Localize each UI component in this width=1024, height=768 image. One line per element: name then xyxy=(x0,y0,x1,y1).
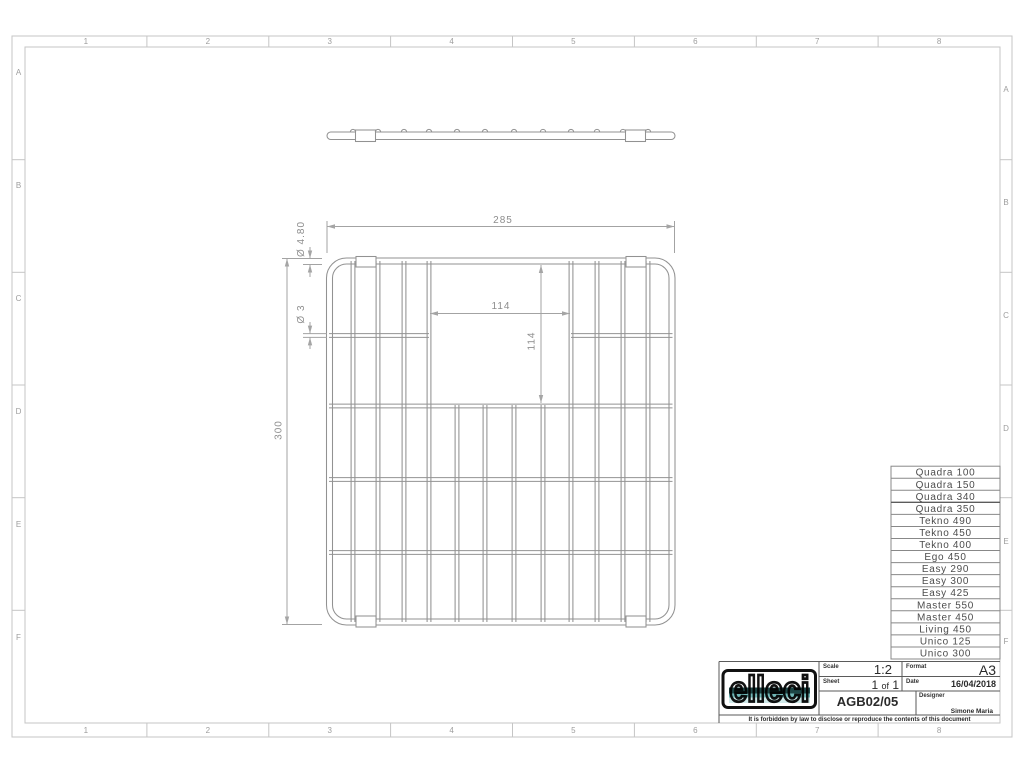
svg-text:300: 300 xyxy=(274,420,285,440)
svg-text:4: 4 xyxy=(449,726,454,735)
svg-text:Format: Format xyxy=(906,664,926,670)
svg-text:7: 7 xyxy=(815,37,820,46)
svg-text:5: 5 xyxy=(571,726,576,735)
svg-text:Master 550: Master 550 xyxy=(917,600,974,611)
svg-text:Easy 425: Easy 425 xyxy=(922,588,969,599)
svg-text:1: 1 xyxy=(84,37,89,46)
svg-text:1:2: 1:2 xyxy=(874,662,892,677)
svg-text:D: D xyxy=(16,407,22,416)
svg-text:E: E xyxy=(16,520,21,529)
svg-text:6: 6 xyxy=(693,37,698,46)
svg-text:6: 6 xyxy=(693,726,698,735)
svg-text:A: A xyxy=(1003,85,1009,94)
svg-text:Tekno 400: Tekno 400 xyxy=(919,540,971,551)
svg-text:3: 3 xyxy=(327,726,332,735)
svg-text:1: 1 xyxy=(84,726,89,735)
svg-text:Scale: Scale xyxy=(823,664,839,670)
svg-text:4: 4 xyxy=(449,37,454,46)
svg-text:Easy 300: Easy 300 xyxy=(922,576,969,587)
svg-text:Quadra 100: Quadra 100 xyxy=(916,468,976,479)
svg-text:E: E xyxy=(1003,537,1008,546)
svg-text:16/04/2018: 16/04/2018 xyxy=(951,679,996,689)
svg-text:B: B xyxy=(16,181,21,190)
svg-text:1 of 1: 1 of 1 xyxy=(871,678,899,692)
svg-text:It is forbidden by law to disc: It is forbidden by law to disclose or re… xyxy=(748,716,970,723)
svg-text:F: F xyxy=(16,633,21,642)
svg-text:8: 8 xyxy=(937,37,942,46)
svg-text:2: 2 xyxy=(206,37,211,46)
svg-text:Master 450: Master 450 xyxy=(917,612,974,623)
svg-text:Living 450: Living 450 xyxy=(919,624,972,635)
svg-text:F: F xyxy=(1004,637,1009,646)
svg-text:Date: Date xyxy=(906,679,920,685)
svg-text:Quadra 350: Quadra 350 xyxy=(916,504,976,515)
svg-text:C: C xyxy=(16,294,22,303)
svg-text:Unico 125: Unico 125 xyxy=(920,636,971,647)
svg-text:A3: A3 xyxy=(979,662,996,678)
svg-text:Designer: Designer xyxy=(919,693,945,699)
svg-text:Tekno 490: Tekno 490 xyxy=(919,516,971,527)
svg-text:114: 114 xyxy=(492,301,511,312)
svg-text:5: 5 xyxy=(571,37,576,46)
svg-text:Ego 450: Ego 450 xyxy=(924,552,966,563)
svg-text:2: 2 xyxy=(206,726,211,735)
svg-text:Quadra 150: Quadra 150 xyxy=(916,480,976,491)
svg-text:Sheet: Sheet xyxy=(823,679,839,685)
svg-text:Easy 290: Easy 290 xyxy=(922,564,969,575)
svg-text:Simone Maria: Simone Maria xyxy=(951,708,994,715)
svg-text:Tekno 450: Tekno 450 xyxy=(919,528,971,539)
svg-text:AGB02/05: AGB02/05 xyxy=(837,694,898,709)
svg-text:285: 285 xyxy=(493,215,513,226)
svg-text:A: A xyxy=(16,68,22,77)
svg-text:8: 8 xyxy=(937,726,942,735)
svg-text:D: D xyxy=(1003,424,1009,433)
svg-text:Unico 300: Unico 300 xyxy=(920,648,971,659)
svg-text:Ø 3: Ø 3 xyxy=(296,304,307,323)
svg-text:114: 114 xyxy=(527,332,538,351)
svg-text:Ø 4.80: Ø 4.80 xyxy=(296,221,307,257)
svg-text:7: 7 xyxy=(815,726,820,735)
svg-text:Quadra 340: Quadra 340 xyxy=(916,492,976,503)
svg-text:C: C xyxy=(1003,311,1009,320)
svg-text:B: B xyxy=(1003,198,1008,207)
svg-text:3: 3 xyxy=(327,37,332,46)
